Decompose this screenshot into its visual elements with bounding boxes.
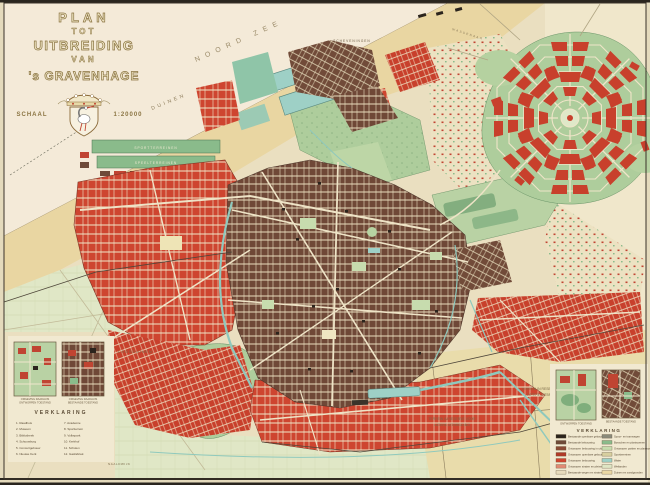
title-tot: TOT — [72, 27, 97, 36]
map-canvas: SPORTTERREINEN SPEELTERREINEN — [0, 0, 650, 485]
legend-item: 10. Kerkhof — [64, 440, 80, 444]
inset1-caption-2: ONTWORPEN TOESTAND — [19, 401, 51, 405]
title-schaal: SCHAAL — [17, 112, 48, 118]
legend-item: 8. Sportterrein — [64, 427, 83, 431]
legend-swatch — [602, 441, 612, 445]
reserve-label-1b: LATERE UITBREIDING — [434, 423, 470, 427]
legend-swatch — [602, 465, 612, 469]
legend-label: Water — [614, 459, 621, 463]
legend-label: Weilanden — [614, 465, 627, 469]
legend-label: Spoor- en tramwegen — [614, 435, 640, 439]
legend-swatch — [556, 441, 566, 445]
legend-swatch — [556, 459, 566, 463]
legend-item: 1. Raadhuis — [16, 421, 33, 425]
legend-swatch — [602, 459, 612, 463]
legend-item: 4. Schouwburg — [16, 440, 36, 444]
legend-label: Ontworpen parken en plantsoenen — [614, 447, 650, 451]
legend-swatch — [602, 453, 612, 457]
legend-right-inset-2 — [602, 370, 640, 418]
legend-right-inset-1 — [556, 370, 596, 420]
scanned-map-page: SPORTTERREINEN SPEELTERREINEN — [0, 0, 650, 485]
legend-left-inset-1 — [14, 342, 56, 396]
title-scale-value: 1:20000 — [113, 112, 142, 118]
loosduinen-label: LOOSDUINEN — [118, 349, 152, 354]
title-city: 's GRAVENHAGE — [29, 69, 140, 83]
legend-right-inset2-caption: BESTAANDE TOESTAND — [606, 420, 636, 424]
legend-item: 6. Nieuwe Kerk — [16, 452, 37, 456]
legend-item: 9. Volkspark — [64, 433, 81, 437]
title-plan: PLAN — [58, 10, 109, 25]
legend-item: 3. Bibliotheek — [16, 433, 35, 437]
legend-right-inset1-caption: ONTWORPEN TOESTAND — [560, 422, 592, 426]
legend-left-panel: OMGEVING RAADHUIS ONTWORPEN TOESTAND OMG… — [8, 336, 114, 462]
legend-item: 7. Academie — [64, 421, 81, 425]
reserve-label-1a: TERREIN IN RESERVE VOOR — [428, 417, 476, 421]
legend-label: Bestaande wegen en straten — [568, 471, 603, 475]
legend-swatch — [602, 471, 612, 475]
legend-label: Duinen en zandgronden — [614, 471, 643, 475]
title-uitbreiding: UITBREIDING — [34, 38, 135, 53]
legend-left-inset-2 — [62, 342, 104, 396]
legend-swatch — [602, 435, 612, 439]
legend-left-heading: VERKLARING — [34, 410, 87, 416]
scheveningen-label: SCHEVENINGEN — [333, 39, 371, 43]
station-building — [352, 400, 368, 406]
legend-swatch — [556, 471, 566, 475]
hofvijver — [368, 248, 380, 253]
legend-right-heading: VERKLARING — [577, 428, 622, 433]
legend-item: 11. Scholen — [64, 446, 80, 450]
legend-label: Sportterreinen — [614, 453, 632, 457]
legend-label: Bestaande openbare gebouwen — [568, 435, 607, 439]
legend-swatch — [556, 453, 566, 457]
naaldwijk-label: NAALDWIJK — [108, 462, 131, 466]
legend-swatch — [556, 447, 566, 451]
legend-label: Ontworpen bebouwing — [568, 459, 595, 463]
sports-ground-label: SPORTTERREINEN — [134, 146, 177, 150]
legend-item: 12. Gasfabriek — [64, 452, 84, 456]
title-van: VAN — [71, 55, 96, 64]
legend-item: 5. Concertgebouw — [16, 446, 41, 450]
legend-label: Ontworpen straten en pleinen — [568, 465, 604, 469]
legend-swatch — [556, 435, 566, 439]
legend-swatch — [602, 447, 612, 451]
inset2-caption-2: BESTAANDE TOESTAND — [68, 401, 98, 405]
legend-swatch — [556, 465, 566, 469]
legend-label: Bestaande bebouwing — [568, 441, 595, 445]
inset2-caption-1: OMGEVING RAADHUIS — [69, 397, 98, 401]
legend-label: Ontworpen openbare gebouwen — [568, 453, 607, 457]
legend-label: Bosschen en plantsoenen — [614, 441, 645, 445]
sports-ground-label-2: SPEELTERREINEN — [135, 161, 177, 165]
inset1-caption-1: OMGEVING RAADHUIS — [21, 397, 50, 401]
legend-item: 2. Museum — [16, 427, 31, 431]
legend-right-panel: ONTWORPEN TOESTAND BESTAANDE TOESTAND VE… — [550, 364, 650, 484]
eastern-expansion-blocks — [472, 292, 644, 362]
